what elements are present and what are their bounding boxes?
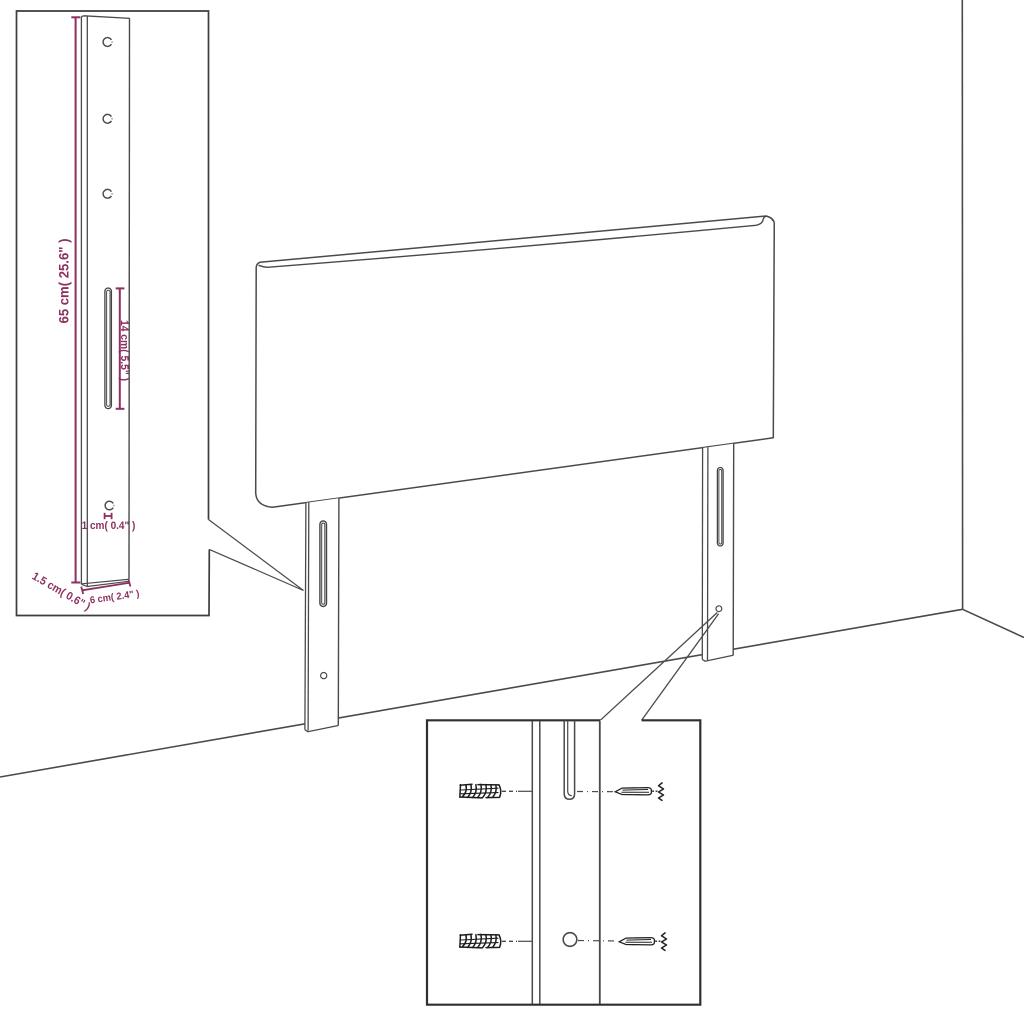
svg-text:1 cm( 0.4" ): 1 cm( 0.4" ): [82, 521, 136, 532]
svg-text:14 cm( 5.5" ): 14 cm( 5.5" ): [118, 320, 130, 381]
svg-text:65 cm( 25.6" ): 65 cm( 25.6" ): [56, 239, 72, 324]
